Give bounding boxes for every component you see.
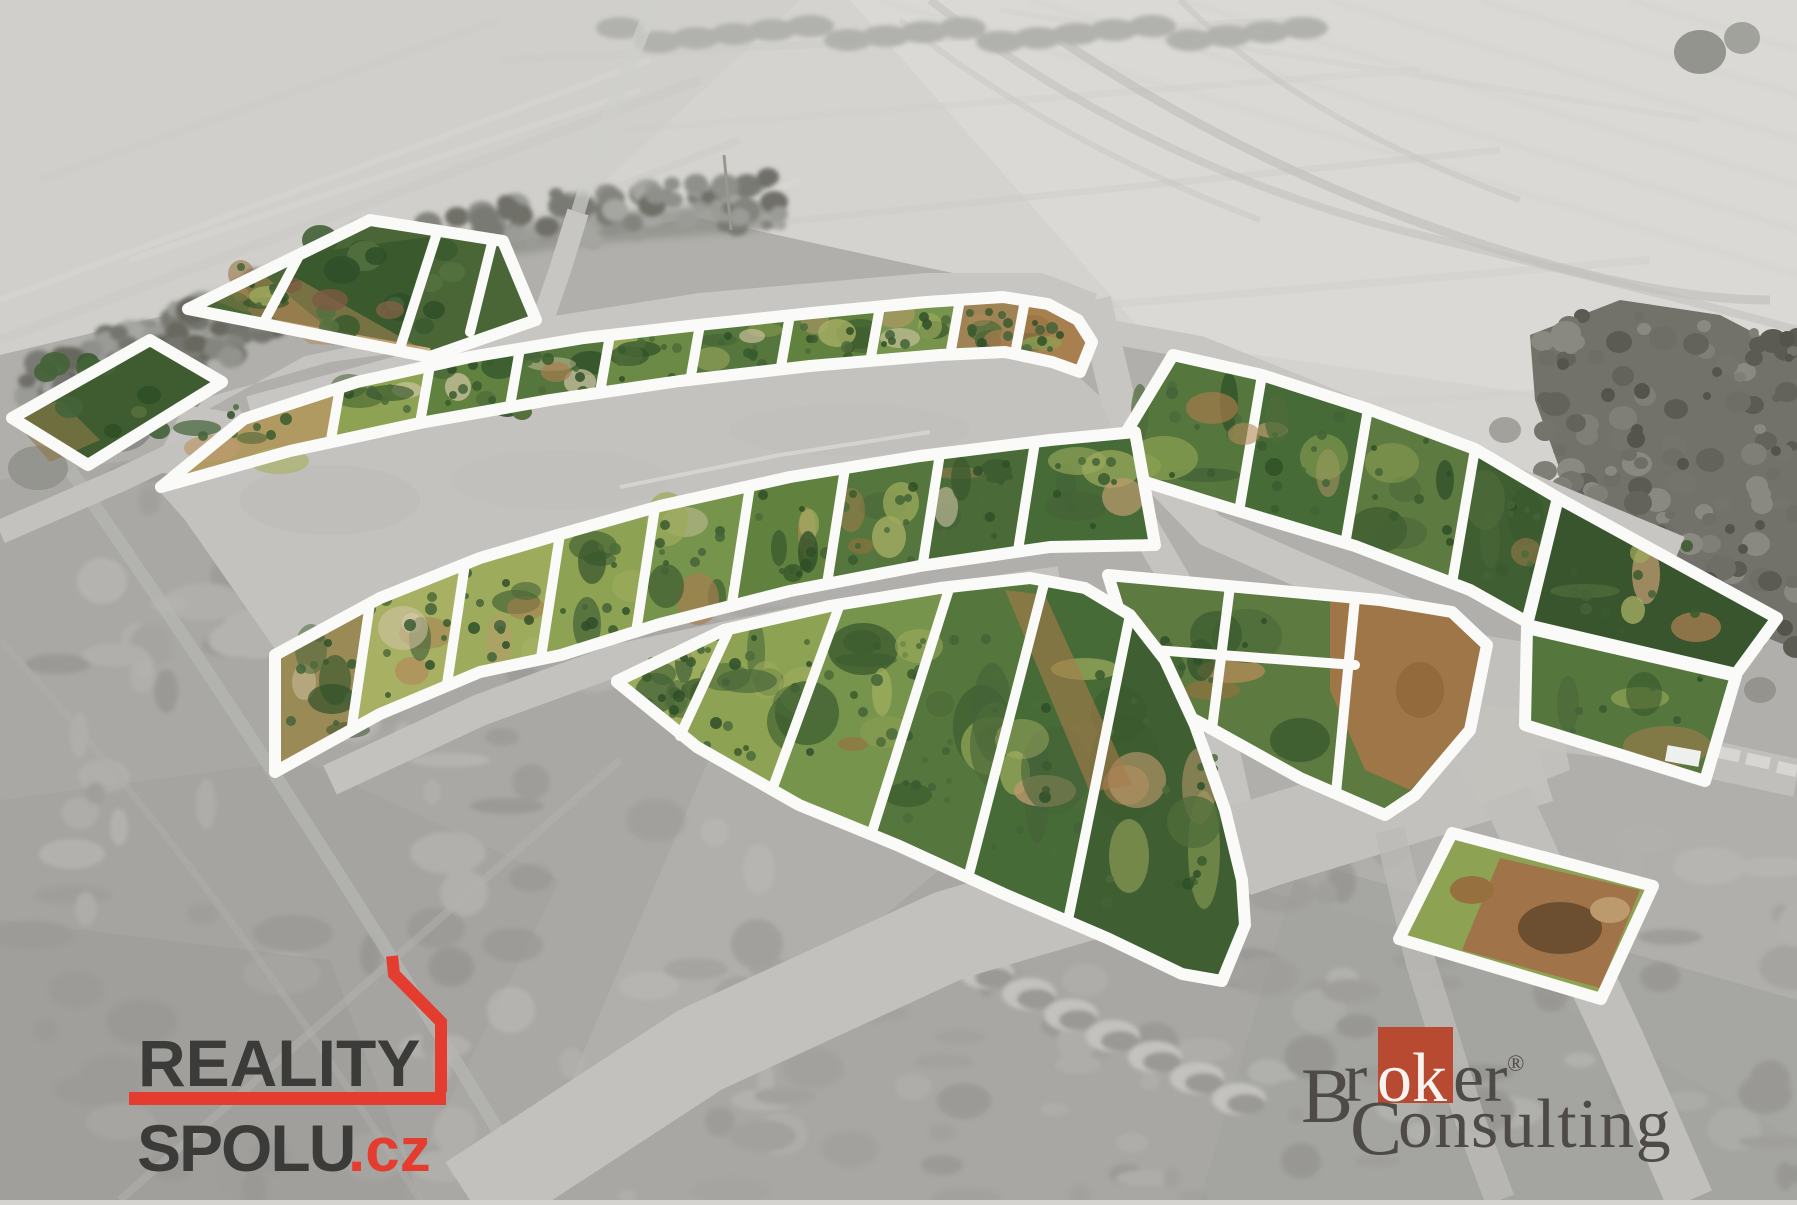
svg-text:®: ® xyxy=(1507,1051,1524,1076)
svg-text:onsulting: onsulting xyxy=(1398,1086,1672,1163)
svg-text:.cz: .cz xyxy=(348,1116,431,1185)
svg-text:C: C xyxy=(1350,1084,1402,1171)
svg-text:REALITY: REALITY xyxy=(138,1026,420,1100)
svg-text:SPOLU: SPOLU xyxy=(137,1111,354,1185)
